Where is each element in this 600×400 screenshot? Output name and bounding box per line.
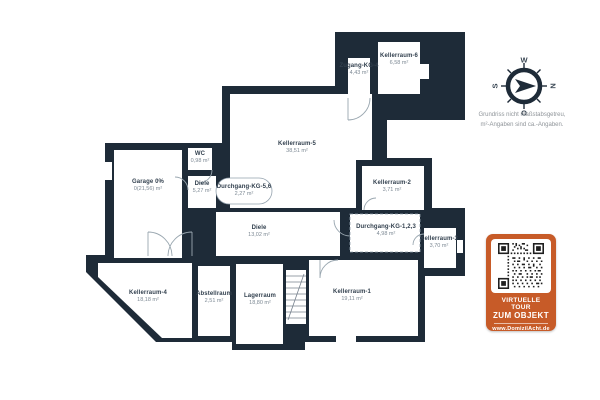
room-shape-kellerraum-2 bbox=[362, 166, 424, 210]
qr-finder-tl bbox=[498, 243, 509, 254]
room-shape-abstellraum bbox=[198, 266, 230, 336]
window-kellerraum-6 bbox=[420, 64, 429, 79]
room-shape-kellerraum-1 bbox=[309, 260, 418, 336]
qr-finder-bl bbox=[498, 278, 509, 289]
room-shape-diele-main bbox=[216, 212, 340, 256]
compass-rose: W N O S bbox=[491, 56, 558, 118]
qr-code bbox=[491, 239, 551, 293]
compass-label-w: W bbox=[520, 56, 528, 65]
room-shape-kellerraum-3 bbox=[424, 228, 456, 268]
room-shape-lagerraum bbox=[236, 264, 283, 344]
tour-badge-line-1: VIRTUELLE TOUR bbox=[491, 297, 551, 311]
room-shape-zugang-kg-4 bbox=[348, 58, 370, 98]
window-garage bbox=[105, 162, 112, 180]
compass-label-s: S bbox=[491, 83, 500, 88]
floorplan-svg: W N O S bbox=[0, 0, 600, 400]
qr-finder-tr bbox=[533, 243, 544, 254]
room-shape-durchgang-kg-56 bbox=[216, 178, 272, 204]
qr-code-pattern bbox=[498, 243, 544, 289]
window-kellerraum-1 bbox=[336, 336, 356, 342]
room-shape-durchgang-kg-123 bbox=[350, 214, 420, 252]
compass-label-n: N bbox=[549, 83, 558, 88]
room-shape-diele-og bbox=[188, 176, 216, 208]
room-shape-wc bbox=[188, 148, 212, 170]
tour-badge-url: www.DomizilAcht.de bbox=[491, 326, 551, 332]
tour-badge-divider bbox=[494, 323, 548, 324]
disclaimer-line-1: Grundriss nicht maßstabsgetreu, bbox=[452, 111, 592, 121]
disclaimer-line-2: m²-Angaben sind ca.-Angaben. bbox=[452, 121, 592, 131]
tour-badge-line-2: ZUM OBJEKT bbox=[491, 311, 551, 320]
virtual-tour-badge: VIRTUELLE TOUR ZUM OBJEKT www.DomizilAch… bbox=[486, 234, 556, 331]
room-shape-kellerraum-6 bbox=[378, 42, 420, 94]
disclaimer-note: Grundriss nicht maßstabsgetreu, m²-Angab… bbox=[452, 111, 592, 130]
floorplan-page: W N O S Zugang-KG-4 4,43 m² Kellerraum-6… bbox=[0, 0, 600, 400]
window-kellerraum-3 bbox=[457, 240, 463, 253]
